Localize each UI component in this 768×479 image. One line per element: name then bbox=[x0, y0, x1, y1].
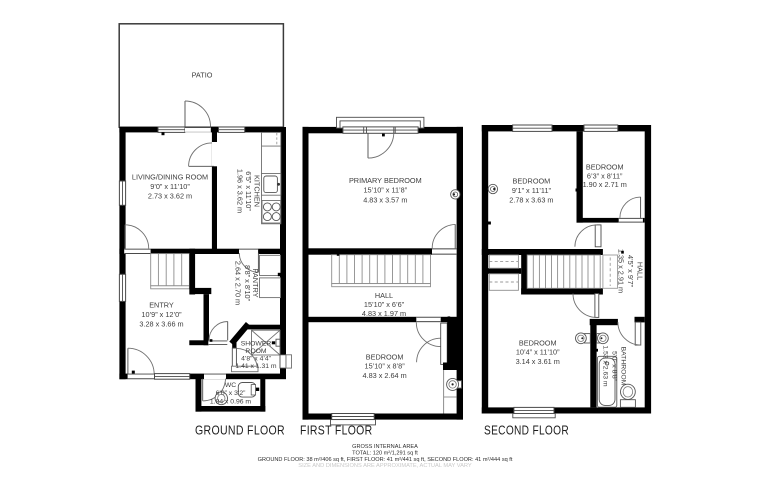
svg-text:BATHROOM: BATHROOM bbox=[620, 347, 627, 386]
svg-text:2.64 x 2.70 m: 2.64 x 2.70 m bbox=[233, 261, 242, 305]
svg-text:10’4” x 11’10”: 10’4” x 11’10” bbox=[516, 348, 560, 357]
svg-text:2.73 x 3.62 m: 2.73 x 3.62 m bbox=[148, 192, 192, 201]
svg-text:6’3” x 8’11”: 6’3” x 8’11” bbox=[587, 171, 623, 180]
svg-text:FIRST FLOOR: FIRST FLOOR bbox=[300, 423, 373, 438]
svg-text:PATIO: PATIO bbox=[192, 71, 213, 80]
svg-text:SIZE AND DIMENSIONS ARE APPROX: SIZE AND DIMENSIONS ARE APPROXIMATE, ACT… bbox=[298, 463, 472, 469]
svg-text:2.78 x 3.63 m: 2.78 x 3.63 m bbox=[509, 196, 553, 205]
svg-text:BEDROOM: BEDROOM bbox=[586, 163, 624, 172]
svg-text:GROSS INTERNAL AREA: GROSS INTERNAL AREA bbox=[352, 444, 418, 450]
svg-text:GROUND FLOOR: GROUND FLOOR bbox=[195, 423, 285, 438]
svg-text:WC: WC bbox=[225, 382, 236, 389]
svg-text:9’0” x 11’10”: 9’0” x 11’10” bbox=[150, 182, 190, 191]
svg-text:1.53 x 2.63 m: 1.53 x 2.63 m bbox=[602, 345, 609, 387]
svg-text:1.41 x 1.31 m: 1.41 x 1.31 m bbox=[235, 363, 277, 370]
svg-text:3.28 x 3.66 m: 3.28 x 3.66 m bbox=[139, 320, 183, 329]
svg-text:15’10” x 6’6”: 15’10” x 6’6” bbox=[364, 300, 405, 309]
svg-text:4’8” x 4’4”: 4’8” x 4’4” bbox=[241, 356, 272, 363]
svg-text:ENTRY: ENTRY bbox=[149, 301, 174, 310]
svg-text:BEDROOM: BEDROOM bbox=[513, 177, 551, 186]
svg-text:6’0” x 3’2”: 6’0” x 3’2” bbox=[216, 390, 247, 397]
svg-text:5’0” x 8’8”: 5’0” x 8’8” bbox=[611, 351, 618, 382]
svg-text:4.83 x 3.57 m: 4.83 x 3.57 m bbox=[363, 195, 407, 204]
svg-text:TOTAL: 120 m²/1,291 sq ft: TOTAL: 120 m²/1,291 sq ft bbox=[352, 450, 418, 456]
svg-text:4’5” x 9’7”: 4’5” x 9’7” bbox=[626, 255, 635, 288]
svg-text:8’8” x 8’10”: 8’8” x 8’10” bbox=[243, 265, 252, 302]
svg-text:15’10” x 8’8”: 15’10” x 8’8” bbox=[365, 362, 406, 371]
svg-text:1.35 x 2.91 m: 1.35 x 2.91 m bbox=[617, 249, 626, 293]
svg-text:10’9” x 12’0”: 10’9” x 12’0” bbox=[141, 310, 182, 319]
svg-text:ROOM: ROOM bbox=[245, 348, 266, 355]
svg-text:9’1” x 11’11”: 9’1” x 11’11” bbox=[512, 186, 552, 195]
svg-text:PRIMARY BEDROOM: PRIMARY BEDROOM bbox=[349, 176, 422, 185]
svg-text:BEDROOM: BEDROOM bbox=[366, 353, 404, 362]
svg-text:1.90 x 2.71 m: 1.90 x 2.71 m bbox=[583, 180, 627, 189]
svg-text:1.96 x 3.62 m: 1.96 x 3.62 m bbox=[235, 169, 244, 213]
svg-text:GROUND FLOOR: 38 m²/406 sq ft,: GROUND FLOOR: 38 m²/406 sq ft, FIRST FLO… bbox=[258, 457, 513, 463]
svg-text:LIVING/DINING ROOM: LIVING/DINING ROOM bbox=[132, 173, 208, 182]
svg-text:HALL: HALL bbox=[635, 262, 644, 280]
svg-text:4.83 x 1.97 m: 4.83 x 1.97 m bbox=[362, 309, 406, 318]
svg-text:4.83 x 2.64 m: 4.83 x 2.64 m bbox=[362, 371, 406, 380]
svg-text:1.84 x 0.96 m: 1.84 x 0.96 m bbox=[210, 398, 252, 405]
svg-text:BEDROOM: BEDROOM bbox=[519, 339, 557, 348]
svg-text:SECOND FLOOR: SECOND FLOOR bbox=[484, 423, 569, 438]
svg-text:15’10” x 11’8”: 15’10” x 11’8” bbox=[363, 186, 407, 195]
svg-text:3.14 x 3.61 m: 3.14 x 3.61 m bbox=[516, 357, 560, 366]
svg-text:SHOWER: SHOWER bbox=[241, 341, 272, 348]
svg-text:HALL: HALL bbox=[375, 291, 393, 300]
